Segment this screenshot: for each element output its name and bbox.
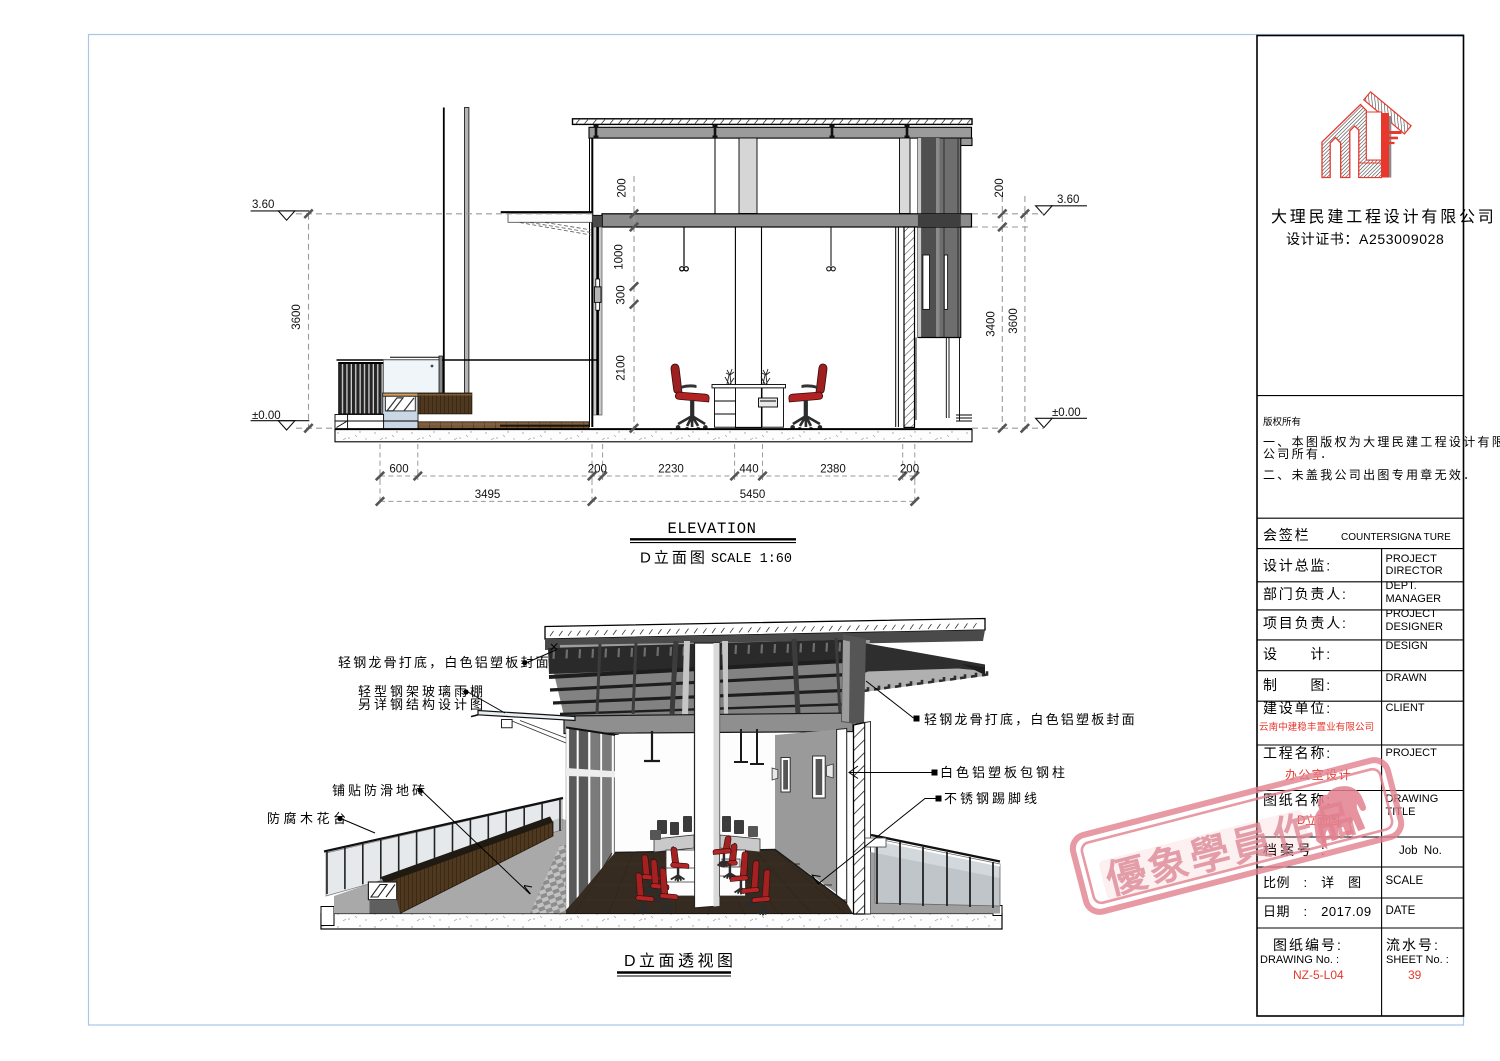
svg-text:DESIGN: DESIGN <box>1386 640 1428 652</box>
svg-text:DEPT.: DEPT. <box>1386 580 1417 592</box>
svg-text:3400: 3400 <box>986 311 998 337</box>
svg-text:200: 200 <box>588 464 607 476</box>
svg-text:200: 200 <box>994 178 1006 197</box>
svg-text:DIRECTOR: DIRECTOR <box>1386 565 1443 577</box>
svg-text:200: 200 <box>617 178 629 197</box>
svg-text:39: 39 <box>1408 968 1422 982</box>
svg-text:轻钢龙骨打底，白色铝塑板封面: 轻钢龙骨打底，白色铝塑板封面 <box>338 655 551 670</box>
svg-text:制 图:: 制 图: <box>1263 677 1332 693</box>
svg-text:PROJECT: PROJECT <box>1386 553 1438 565</box>
svg-text:设计总监:: 设计总监: <box>1263 558 1332 574</box>
svg-text:二、未盖我公司出图专用章无效．: 二、未盖我公司出图专用章无效． <box>1263 467 1478 482</box>
svg-text:DRAWING No. :: DRAWING No. : <box>1260 954 1339 966</box>
svg-text:PROJECT: PROJECT <box>1386 747 1438 759</box>
svg-text:3.60: 3.60 <box>1057 194 1079 206</box>
svg-text:设计证书：A253009028: 设计证书：A253009028 <box>1286 231 1444 247</box>
svg-text:项目负责人:: 项目负责人: <box>1263 615 1348 631</box>
svg-text:600: 600 <box>389 464 408 476</box>
svg-text:DATE: DATE <box>1386 905 1416 917</box>
svg-text:440: 440 <box>739 464 758 476</box>
svg-text:大理民建工程设计有限公司: 大理民建工程设计有限公司 <box>1271 208 1497 226</box>
svg-text:SCALE: SCALE <box>1386 875 1424 887</box>
svg-text:防腐木花台: 防腐木花台 <box>267 811 350 826</box>
svg-text:2230: 2230 <box>658 464 684 476</box>
svg-text:SHEET No. :: SHEET No. : <box>1386 954 1449 966</box>
svg-text:2380: 2380 <box>820 464 846 476</box>
svg-text:建设单位:: 建设单位: <box>1263 700 1332 716</box>
svg-text:轻钢龙骨打底，白色铝塑板封面: 轻钢龙骨打底，白色铝塑板封面 <box>924 712 1137 727</box>
svg-text:D立面图: D立面图 <box>640 550 708 567</box>
svg-text:3600: 3600 <box>291 304 303 330</box>
svg-text:DRAWN: DRAWN <box>1386 672 1427 684</box>
svg-text:公司所有．: 公司所有． <box>1263 447 1335 461</box>
svg-text:流水号:: 流水号: <box>1386 937 1440 953</box>
svg-text:图纸编号:: 图纸编号: <box>1273 937 1343 953</box>
svg-text:MANAGER: MANAGER <box>1386 593 1442 605</box>
svg-text:另详钢结构设计图: 另详钢结构设计图 <box>358 697 486 712</box>
svg-text:设 计:: 设 计: <box>1263 646 1332 662</box>
svg-text:不锈钢踢脚线: 不锈钢踢脚线 <box>944 791 1040 806</box>
svg-text:D立面透视图: D立面透视图 <box>624 952 737 970</box>
svg-text:铺贴防滑地砖: 铺贴防滑地砖 <box>332 783 428 798</box>
svg-text:COUNTERSIGNA TURE: COUNTERSIGNA TURE <box>1341 532 1451 543</box>
svg-text:DESIGNER: DESIGNER <box>1386 621 1444 633</box>
svg-text:3495: 3495 <box>475 489 501 501</box>
svg-text:部门负责人:: 部门负责人: <box>1263 586 1348 602</box>
svg-text:版权所有: 版权所有 <box>1263 416 1301 428</box>
svg-text:2100: 2100 <box>616 355 628 381</box>
svg-text:会签栏: 会签栏 <box>1263 527 1310 543</box>
svg-text:NZ-5-L04: NZ-5-L04 <box>1293 968 1344 982</box>
svg-text:3.60: 3.60 <box>252 199 274 211</box>
svg-text:CLIENT: CLIENT <box>1386 702 1425 714</box>
svg-text:比例 : 详 图: 比例 : 详 图 <box>1263 875 1362 890</box>
svg-text:白色铝塑板包钢柱: 白色铝塑板包钢柱 <box>940 765 1068 780</box>
svg-text:1000: 1000 <box>614 244 626 270</box>
svg-text:300: 300 <box>616 285 628 304</box>
svg-text:Job No.: Job No. <box>1399 845 1442 857</box>
svg-text:SCALE 1:60: SCALE 1:60 <box>711 552 792 567</box>
svg-text:工程名称:: 工程名称: <box>1263 745 1332 761</box>
svg-text:PROJECT: PROJECT <box>1386 608 1438 620</box>
svg-text:200: 200 <box>900 464 919 476</box>
svg-text:云南中建稳丰置业有限公司: 云南中建稳丰置业有限公司 <box>1259 721 1374 733</box>
svg-text:5450: 5450 <box>740 489 766 501</box>
svg-text:3600: 3600 <box>1008 308 1020 334</box>
svg-text:日期 : 2017.09: 日期 : 2017.09 <box>1263 904 1372 919</box>
svg-text:±0.00: ±0.00 <box>1052 407 1081 419</box>
svg-text:ELEVATION: ELEVATION <box>667 520 756 538</box>
